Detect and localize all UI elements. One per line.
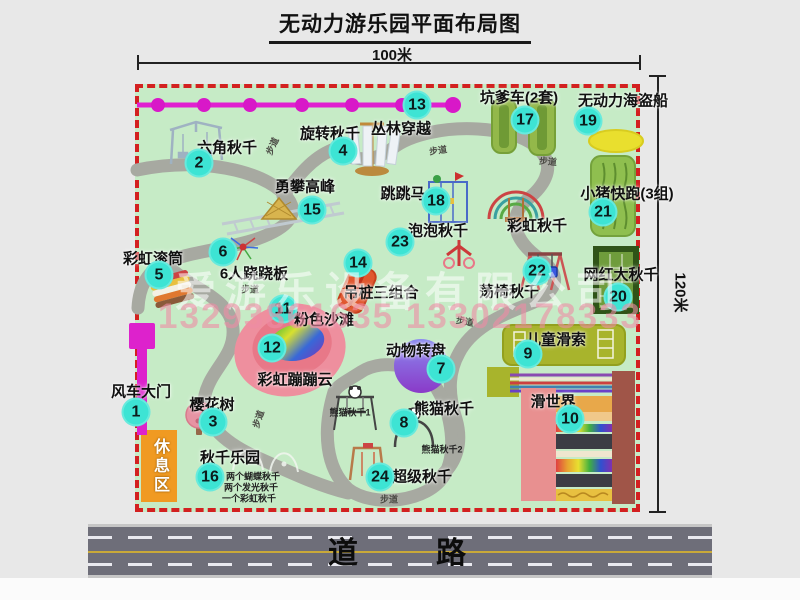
attraction-badge-13[interactable]: 13 [403,91,432,120]
attraction-badge-6[interactable]: 6 [209,238,238,267]
attraction-badge-9[interactable]: 9 [514,340,543,369]
attraction-badge-10[interactable]: 10 [556,405,585,434]
road-label: 道 路 [88,528,712,572]
attraction-badge-4[interactable]: 4 [329,137,358,166]
attraction-badge-19[interactable]: 19 [574,107,603,136]
rest-area: 休息区 [141,430,177,502]
dim-top-tick-left [137,55,139,70]
attraction-badge-11[interactable]: 11 [269,295,298,324]
attraction-badge-24[interactable]: 24 [366,463,395,492]
attraction-badge-5[interactable]: 5 [145,261,174,290]
attraction-badge-12[interactable]: 12 [258,334,287,363]
bottom-strip [0,578,800,600]
dim-right-tick-bottom [649,511,666,513]
attraction-badge-15[interactable]: 15 [298,196,327,225]
park-layout-canvas: 无动力游乐园平面布局图 100米 120米 休息区 [0,0,800,600]
attraction-badge-8[interactable]: 8 [390,409,419,438]
attraction-badge-20[interactable]: 20 [604,283,633,312]
dim-right-line [657,76,659,513]
dim-right-tick-top [649,75,666,77]
attraction-badge-17[interactable]: 17 [511,106,540,135]
dim-top-tick-right [639,55,641,70]
attraction-badge-14[interactable]: 14 [344,249,373,278]
dim-height-label: 120米 [671,272,692,312]
attraction-badge-7[interactable]: 7 [427,355,456,384]
attraction-badge-1[interactable]: 1 [122,398,151,427]
park-map[interactable] [135,84,640,512]
attraction-badge-23[interactable]: 23 [386,228,415,257]
attraction-badge-18[interactable]: 18 [422,187,451,216]
attraction-badge-22[interactable]: 22 [523,257,552,286]
road: 道 路 [88,524,712,578]
attraction-badge-16[interactable]: 16 [196,463,225,492]
attraction-badge-2[interactable]: 2 [185,149,214,178]
rest-area-label: 休息区 [147,438,171,495]
attraction-badge-3[interactable]: 3 [199,408,228,437]
dim-top-line [138,62,640,64]
attraction-badge-21[interactable]: 21 [589,198,618,227]
page-title: 无动力游乐园平面布局图 [269,8,531,44]
